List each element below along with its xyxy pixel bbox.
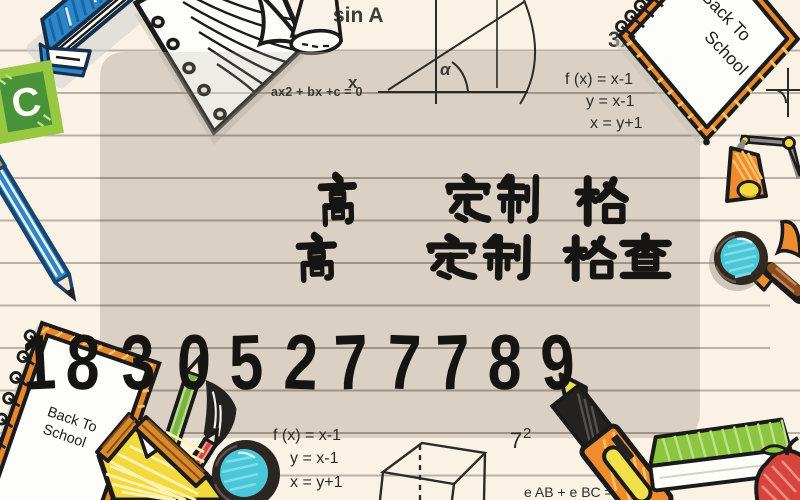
svg-text:9: 9 bbox=[538, 318, 576, 407]
svg-text:2: 2 bbox=[523, 425, 531, 442]
svg-text:x = y+1: x = y+1 bbox=[590, 115, 643, 132]
svg-text:7: 7 bbox=[386, 318, 423, 406]
svg-text:8: 8 bbox=[65, 318, 102, 406]
svg-text:x: x bbox=[348, 73, 358, 92]
svg-text:7: 7 bbox=[435, 318, 472, 406]
svg-text:0: 0 bbox=[176, 318, 213, 406]
svg-text:5: 5 bbox=[228, 318, 265, 406]
svg-text:f (x) = x-1: f (x) = x-1 bbox=[273, 427, 341, 444]
svg-text:3: 3 bbox=[120, 318, 157, 406]
svg-text:α: α bbox=[440, 60, 452, 79]
svg-text:sin A: sin A bbox=[333, 4, 384, 27]
svg-text:f (x) = x-1: f (x) = x-1 bbox=[565, 71, 633, 88]
svg-text:2: 2 bbox=[283, 318, 320, 406]
svg-text:7: 7 bbox=[510, 428, 522, 453]
svg-text:y = x-1: y = x-1 bbox=[290, 450, 339, 467]
svg-text:y = x-1: y = x-1 bbox=[586, 93, 635, 110]
svg-text:1: 1 bbox=[19, 318, 57, 407]
svg-text:8: 8 bbox=[487, 318, 524, 406]
svg-text:7: 7 bbox=[333, 318, 370, 406]
svg-text:x = y+1: x = y+1 bbox=[290, 474, 343, 491]
